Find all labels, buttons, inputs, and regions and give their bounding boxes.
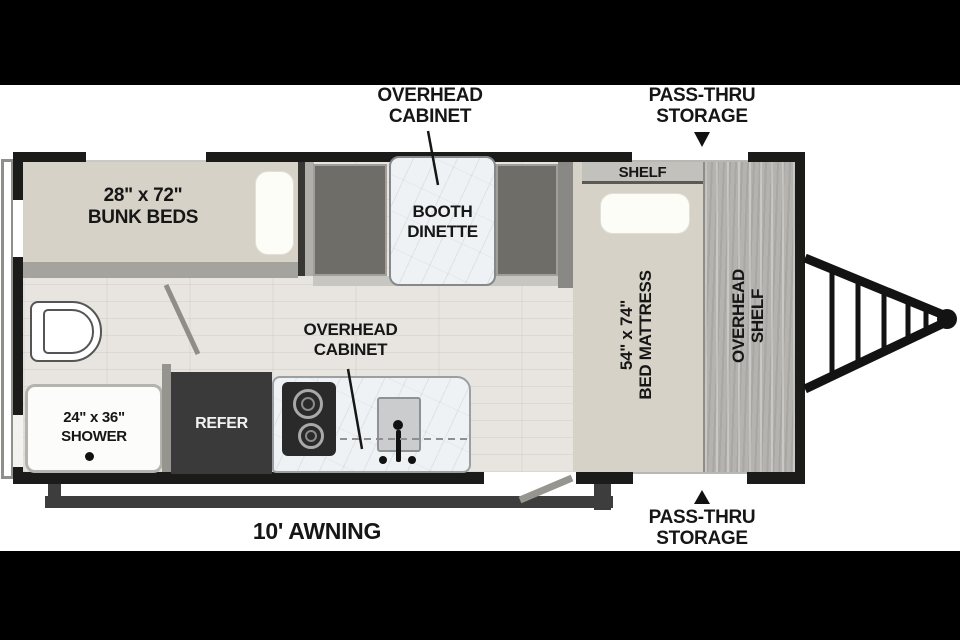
pass-thru-top-opening (632, 152, 748, 162)
faucet-knob-left (379, 456, 387, 464)
bunk-window-opening (86, 152, 206, 162)
bunk-beds-label: 28" x 72" BUNK BEDS (58, 185, 228, 229)
overhead-cabinet-kitchen-label: OVERHEAD CABINET (283, 320, 418, 360)
bed-mattress-label: 54" x 74" BED MATTRESS (617, 270, 655, 399)
dinette-bench-left (313, 164, 387, 276)
faucet-stem (396, 430, 401, 462)
floorplan-diagram: OVERHEAD CABINET PASS-THRU STORAGE 28" x… (0, 0, 960, 640)
left-window-opening-2 (13, 415, 23, 467)
shower-label: 24" x 36" SHOWER (30, 408, 158, 446)
pass-thru-bottom-opening (633, 472, 747, 484)
stove-burner-small-inner (305, 430, 317, 442)
stove-burner-large-inner (301, 397, 315, 411)
dinette-bed-divider-wall (558, 162, 573, 288)
refer-label: REFER (171, 413, 272, 434)
pass-thru-bottom-label: PASS-THRU STORAGE (627, 507, 777, 549)
entry-door-opening (484, 472, 576, 484)
faucet-base (393, 420, 403, 430)
bed-pillow (600, 193, 690, 234)
bunk-dinette-divider-wall (298, 162, 305, 276)
bunk-front-edge (23, 262, 298, 278)
dinette-bench-right (496, 164, 558, 276)
toilet-bowl (43, 309, 94, 354)
awning-foot-left (48, 484, 61, 498)
awning-bar (45, 496, 613, 508)
overhead-shelf-label: OVERHEAD SHELF (729, 269, 767, 363)
shower-drain (85, 452, 94, 461)
awning-label: 10' AWNING (197, 518, 437, 544)
booth-dinette-label: BOOTH DINETTE (389, 202, 496, 242)
left-window-opening (13, 200, 23, 257)
overhead-cabinet-top-label: OVERHEAD CABINET (355, 85, 505, 127)
pass-thru-top-label: PASS-THRU STORAGE (627, 85, 777, 127)
awning-foot-right (594, 484, 611, 510)
bath-kitchen-wall-post (162, 364, 171, 472)
faucet-knob-right (408, 456, 416, 464)
bunk-pillow (255, 171, 294, 255)
shelf-label: SHELF (582, 164, 703, 182)
